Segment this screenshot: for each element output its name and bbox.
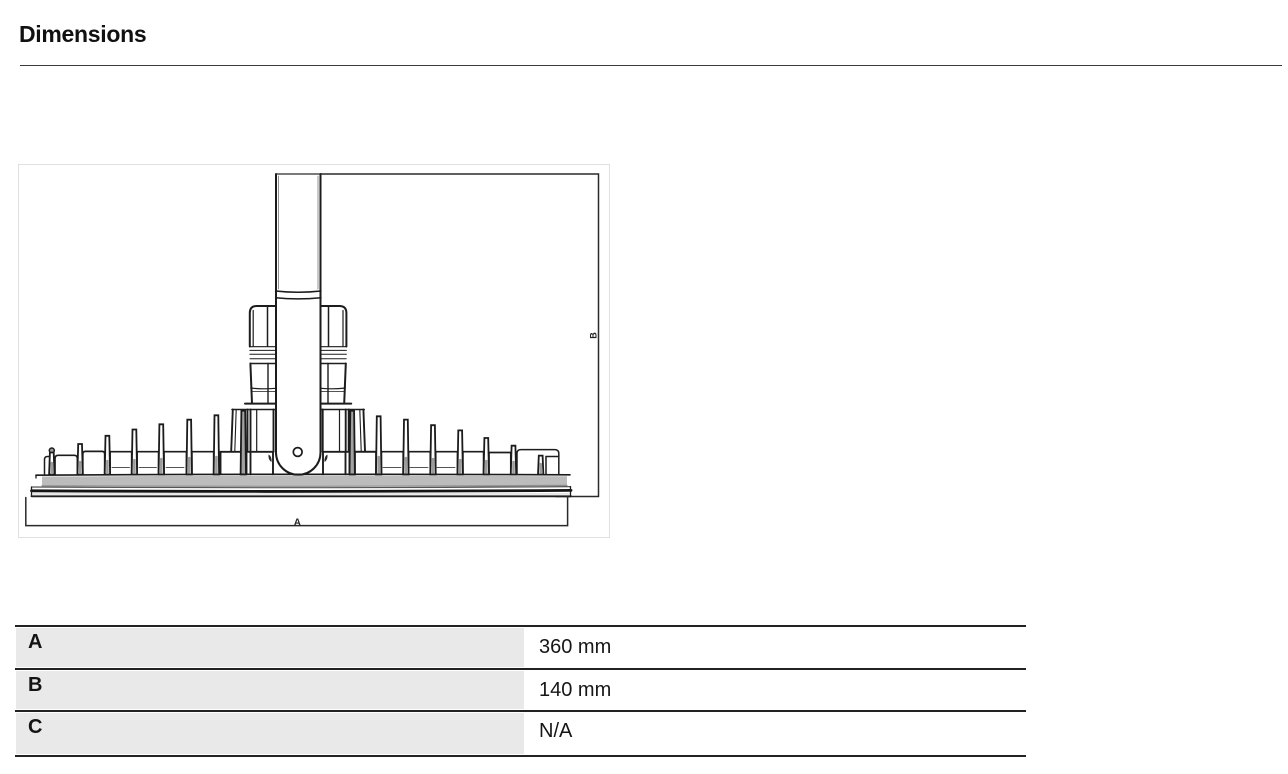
- svg-text:B: B: [589, 332, 599, 339]
- svg-text:A: A: [294, 518, 301, 529]
